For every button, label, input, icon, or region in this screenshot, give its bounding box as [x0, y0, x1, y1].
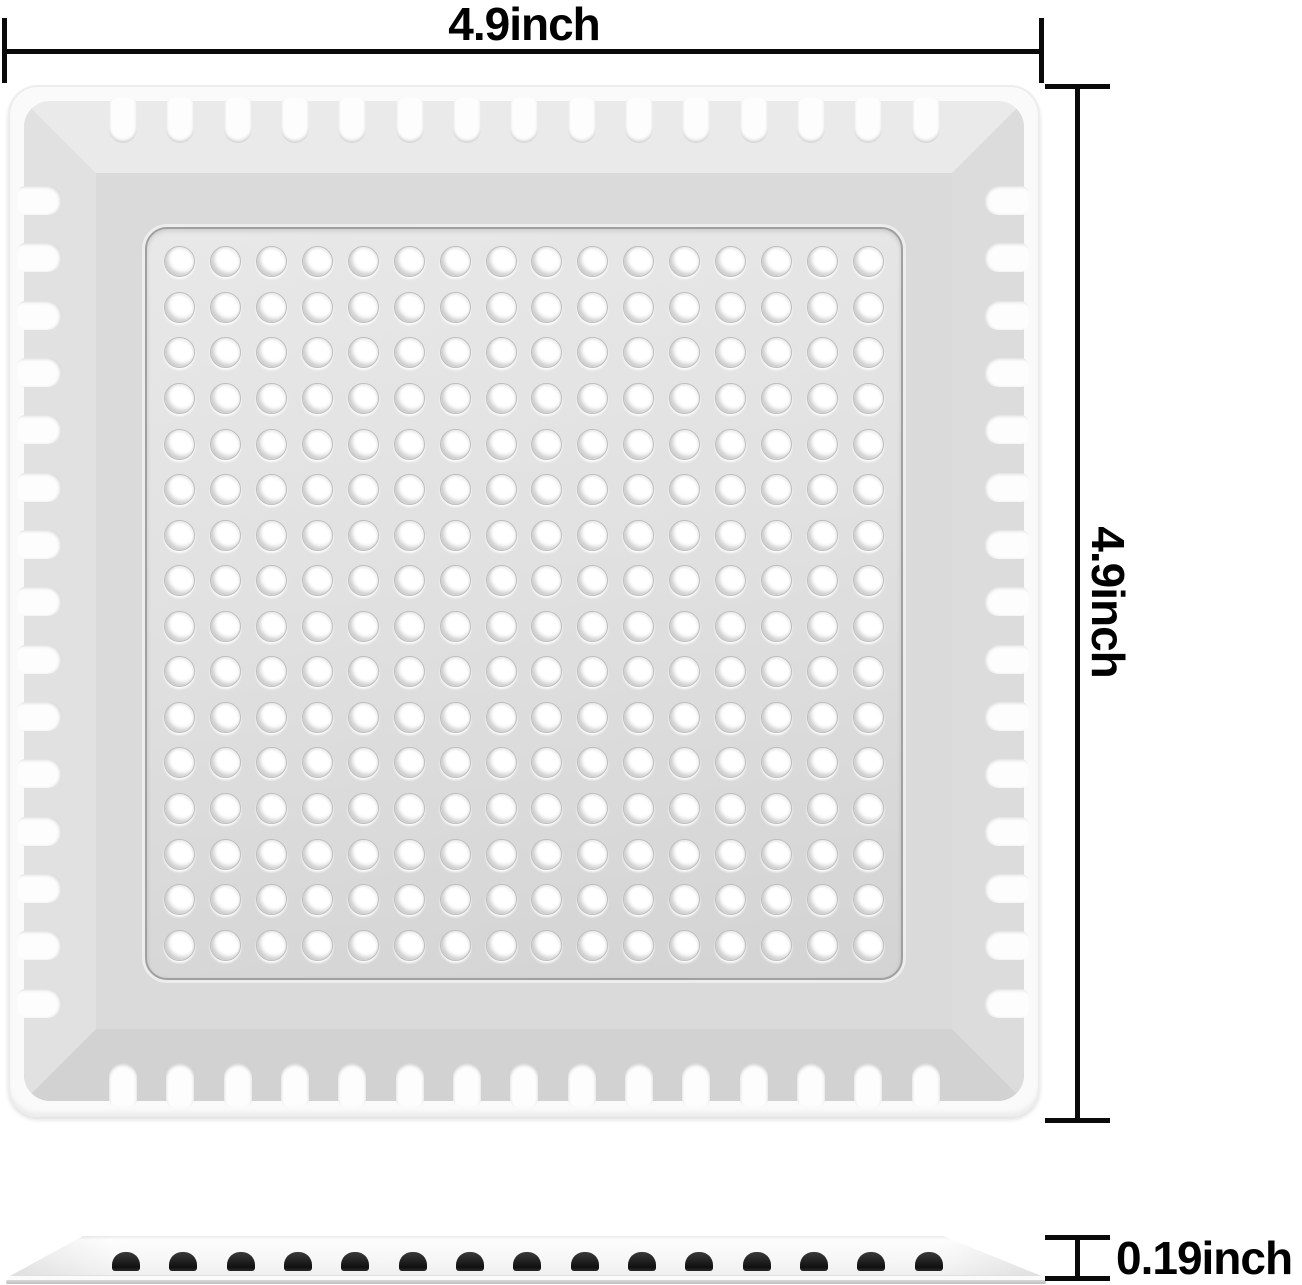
hole [623, 884, 654, 915]
side-view-base-shadow [6, 1280, 1046, 1284]
hole [256, 702, 287, 733]
hole [761, 656, 792, 687]
edge-slot-left [17, 817, 62, 846]
hole [302, 793, 333, 824]
hole [302, 611, 333, 642]
perforated-panel [145, 227, 903, 980]
hole [807, 337, 838, 368]
hole [256, 793, 287, 824]
hole [256, 747, 287, 778]
hole [807, 474, 838, 505]
hole [807, 611, 838, 642]
hole [669, 565, 700, 596]
thickness-dimension-tick-bottom [1045, 1276, 1110, 1281]
hole [394, 246, 425, 277]
hole [807, 793, 838, 824]
hole [440, 292, 471, 323]
edge-slot-right [984, 473, 1029, 502]
hole [761, 246, 792, 277]
hole [348, 930, 379, 961]
edge-slot-left [17, 473, 62, 502]
hole [761, 383, 792, 414]
hole [669, 611, 700, 642]
hole [577, 930, 608, 961]
side-view-slot [513, 1252, 541, 1271]
hole [669, 930, 700, 961]
hole [807, 747, 838, 778]
hole [761, 702, 792, 733]
hole [531, 429, 562, 460]
hole [348, 611, 379, 642]
hole [669, 839, 700, 870]
hole [394, 565, 425, 596]
hole [256, 520, 287, 551]
edge-slot-top [281, 97, 309, 143]
side-view-slot [915, 1252, 943, 1271]
edge-slot-bottom [166, 1063, 194, 1107]
hole [669, 429, 700, 460]
hole [348, 337, 379, 368]
hole [807, 565, 838, 596]
hole [577, 656, 608, 687]
edge-slot-bottom [912, 1063, 940, 1107]
edge-slot-left [17, 301, 62, 330]
hole [164, 884, 195, 915]
hole [210, 565, 241, 596]
hole [623, 337, 654, 368]
height-dimension-tick-top [1045, 84, 1110, 89]
hole [577, 246, 608, 277]
hole [715, 930, 746, 961]
edge-slot-top [453, 97, 481, 143]
edge-slot-top [740, 97, 768, 143]
side-view-slot [227, 1252, 255, 1271]
edge-slot-top [568, 97, 596, 143]
hole [348, 429, 379, 460]
hole [807, 884, 838, 915]
hole [669, 246, 700, 277]
hole [577, 383, 608, 414]
hole [164, 383, 195, 414]
hole [807, 383, 838, 414]
hole [531, 565, 562, 596]
hole [853, 292, 884, 323]
hole [669, 474, 700, 505]
hole [623, 292, 654, 323]
hole [302, 337, 333, 368]
edge-slot-left [17, 587, 62, 616]
side-view-slot [685, 1252, 713, 1271]
hole [210, 884, 241, 915]
hole [486, 702, 517, 733]
hole [577, 520, 608, 551]
hole [531, 839, 562, 870]
hole [256, 383, 287, 414]
hole [853, 839, 884, 870]
hole [761, 565, 792, 596]
hole [486, 520, 517, 551]
hole [853, 656, 884, 687]
edge-slot-bottom [396, 1063, 424, 1107]
hole [761, 474, 792, 505]
hole [256, 337, 287, 368]
hole [623, 656, 654, 687]
hole [853, 702, 884, 733]
edge-slot-bottom [453, 1063, 481, 1107]
hole [853, 611, 884, 642]
side-view-slot [571, 1252, 599, 1271]
hole [807, 429, 838, 460]
hole [715, 565, 746, 596]
edge-slot-right [984, 759, 1029, 788]
hole [486, 656, 517, 687]
hole [394, 747, 425, 778]
hole [807, 292, 838, 323]
hole [164, 702, 195, 733]
edge-slot-bottom [510, 1063, 538, 1107]
hole [348, 839, 379, 870]
hole [302, 246, 333, 277]
hole [577, 292, 608, 323]
hole [164, 565, 195, 596]
hole [440, 337, 471, 368]
hole [531, 793, 562, 824]
hole [164, 793, 195, 824]
hole [669, 793, 700, 824]
hole [669, 702, 700, 733]
hole [761, 520, 792, 551]
side-view-slot [284, 1252, 312, 1271]
hole [440, 611, 471, 642]
edge-slot-top [682, 97, 710, 143]
hole [486, 930, 517, 961]
edge-slot-top [396, 97, 424, 143]
hole [531, 520, 562, 551]
side-view-slot [743, 1252, 771, 1271]
hole [761, 793, 792, 824]
hole [669, 337, 700, 368]
hole [623, 383, 654, 414]
hole [440, 839, 471, 870]
hole [715, 429, 746, 460]
hole [302, 930, 333, 961]
hole [302, 429, 333, 460]
hole [348, 565, 379, 596]
hole [164, 292, 195, 323]
width-dimension-line [4, 49, 1042, 54]
hole [164, 656, 195, 687]
hole [210, 656, 241, 687]
hole [761, 930, 792, 961]
edge-slot-left [17, 759, 62, 788]
hole [256, 884, 287, 915]
hole [761, 884, 792, 915]
hole [623, 747, 654, 778]
hole [210, 474, 241, 505]
hole [394, 292, 425, 323]
hole [164, 246, 195, 277]
hole [577, 884, 608, 915]
hole [807, 520, 838, 551]
hole [853, 930, 884, 961]
hole [486, 884, 517, 915]
hole [715, 292, 746, 323]
width-dimension-tick-right [1039, 18, 1044, 83]
tray-top-view [8, 85, 1040, 1117]
hole [440, 884, 471, 915]
edge-slot-bottom [797, 1063, 825, 1107]
hole [853, 520, 884, 551]
hole [210, 520, 241, 551]
edge-slot-left [17, 989, 62, 1018]
thickness-dimension-line [1075, 1237, 1080, 1280]
edge-slot-left [17, 702, 62, 731]
hole [715, 337, 746, 368]
hole [761, 747, 792, 778]
edge-slot-right [984, 186, 1029, 215]
hole [210, 337, 241, 368]
hole [577, 565, 608, 596]
edge-slot-left [17, 645, 62, 674]
hole [807, 930, 838, 961]
hole [302, 474, 333, 505]
hole [669, 884, 700, 915]
hole [853, 565, 884, 596]
hole [210, 246, 241, 277]
hole [715, 702, 746, 733]
edge-slot-top [510, 97, 538, 143]
hole [577, 337, 608, 368]
hole [761, 839, 792, 870]
hole [210, 292, 241, 323]
hole [256, 429, 287, 460]
hole [302, 292, 333, 323]
hole [531, 747, 562, 778]
hole [531, 656, 562, 687]
hole [486, 292, 517, 323]
hole [715, 611, 746, 642]
hole [302, 747, 333, 778]
hole [394, 793, 425, 824]
edge-slot-bottom [109, 1063, 137, 1107]
hole [531, 611, 562, 642]
hole [486, 337, 517, 368]
hole [440, 793, 471, 824]
hole [302, 839, 333, 870]
thickness-dimension-label: 0.19inch [1116, 1231, 1292, 1285]
hole [348, 884, 379, 915]
hole [577, 702, 608, 733]
hole [210, 429, 241, 460]
hole [761, 611, 792, 642]
hole [256, 930, 287, 961]
hole [256, 292, 287, 323]
edge-slot-right [984, 989, 1029, 1018]
hole [302, 383, 333, 414]
hole [853, 474, 884, 505]
width-dimension-label: 4.9inch [448, 0, 600, 48]
hole [256, 565, 287, 596]
hole [210, 611, 241, 642]
side-view-slot [628, 1252, 656, 1271]
edge-slot-bottom [338, 1063, 366, 1107]
hole [531, 246, 562, 277]
hole [853, 246, 884, 277]
hole [669, 292, 700, 323]
hole [577, 747, 608, 778]
hole [486, 611, 517, 642]
hole [486, 793, 517, 824]
edge-slot-right [984, 301, 1029, 330]
hole [577, 839, 608, 870]
hole [210, 793, 241, 824]
hole [210, 383, 241, 414]
hole [623, 702, 654, 733]
hole [440, 702, 471, 733]
hole [164, 429, 195, 460]
edge-slot-left [17, 186, 62, 215]
hole [623, 429, 654, 460]
hole [210, 930, 241, 961]
hole [348, 520, 379, 551]
hole [302, 520, 333, 551]
edge-slot-bottom [625, 1063, 653, 1107]
hole [807, 839, 838, 870]
hole [715, 884, 746, 915]
edge-slot-left [17, 530, 62, 559]
edge-slot-right [984, 530, 1029, 559]
hole [348, 747, 379, 778]
height-dimension-tick-bottom [1045, 1118, 1110, 1123]
hole [164, 337, 195, 368]
edge-slot-right [984, 702, 1029, 731]
edge-slot-top [625, 97, 653, 143]
hole [348, 793, 379, 824]
hole [440, 246, 471, 277]
hole [164, 839, 195, 870]
hole [531, 702, 562, 733]
edge-slot-bottom [682, 1063, 710, 1107]
hole [715, 793, 746, 824]
hole [256, 474, 287, 505]
hole [348, 656, 379, 687]
hole [164, 930, 195, 961]
side-view-slot [341, 1252, 369, 1271]
hole [715, 383, 746, 414]
hole [669, 520, 700, 551]
hole [853, 747, 884, 778]
hole [164, 474, 195, 505]
edge-slot-top [912, 97, 940, 143]
hole [761, 337, 792, 368]
edge-slot-right [984, 415, 1029, 444]
hole [210, 839, 241, 870]
hole [440, 565, 471, 596]
width-dimension-tick-left [2, 18, 7, 83]
edge-slot-bottom [281, 1063, 309, 1107]
hole [531, 292, 562, 323]
edge-slot-left [17, 358, 62, 387]
hole [577, 611, 608, 642]
hole [623, 793, 654, 824]
edge-slot-top [109, 97, 137, 143]
hole [807, 656, 838, 687]
thickness-dimension-tick-top [1045, 1235, 1110, 1240]
hole [394, 383, 425, 414]
hole [394, 474, 425, 505]
hole [531, 884, 562, 915]
edge-slot-top [224, 97, 252, 143]
side-view-slot [112, 1252, 140, 1271]
hole [302, 656, 333, 687]
hole [394, 656, 425, 687]
hole [715, 246, 746, 277]
hole [853, 429, 884, 460]
hole [440, 474, 471, 505]
hole [256, 656, 287, 687]
hole [302, 884, 333, 915]
hole [302, 702, 333, 733]
edge-slot-top [797, 97, 825, 143]
edge-slot-bottom [568, 1063, 596, 1107]
edge-slot-right [984, 645, 1029, 674]
edge-slot-right [984, 874, 1029, 903]
edge-slot-right [984, 817, 1029, 846]
hole [669, 383, 700, 414]
hole [623, 839, 654, 870]
hole [715, 520, 746, 551]
hole [486, 429, 517, 460]
edge-slot-top [854, 97, 882, 143]
hole [394, 884, 425, 915]
hole [348, 383, 379, 414]
side-view-slot [456, 1252, 484, 1271]
hole [256, 246, 287, 277]
hole [486, 474, 517, 505]
hole [669, 747, 700, 778]
hole [807, 246, 838, 277]
hole [623, 474, 654, 505]
hole [623, 565, 654, 596]
hole [715, 839, 746, 870]
hole [440, 429, 471, 460]
hole [394, 520, 425, 551]
hole [486, 246, 517, 277]
edge-slot-bottom [224, 1063, 252, 1107]
side-view-slot [800, 1252, 828, 1271]
hole [302, 565, 333, 596]
hole [486, 383, 517, 414]
side-view-slot [857, 1252, 885, 1271]
hole [715, 474, 746, 505]
hole [394, 611, 425, 642]
hole [256, 839, 287, 870]
edge-slot-left [17, 931, 62, 960]
hole [623, 930, 654, 961]
edge-slot-bottom [854, 1063, 882, 1107]
hole [164, 747, 195, 778]
hole [164, 611, 195, 642]
hole [210, 702, 241, 733]
hole [440, 747, 471, 778]
hole [348, 246, 379, 277]
edge-slot-left [17, 874, 62, 903]
hole [623, 611, 654, 642]
hole [486, 839, 517, 870]
height-dimension-label: 4.9inch [1081, 526, 1135, 678]
hole [210, 747, 241, 778]
hole [531, 383, 562, 414]
